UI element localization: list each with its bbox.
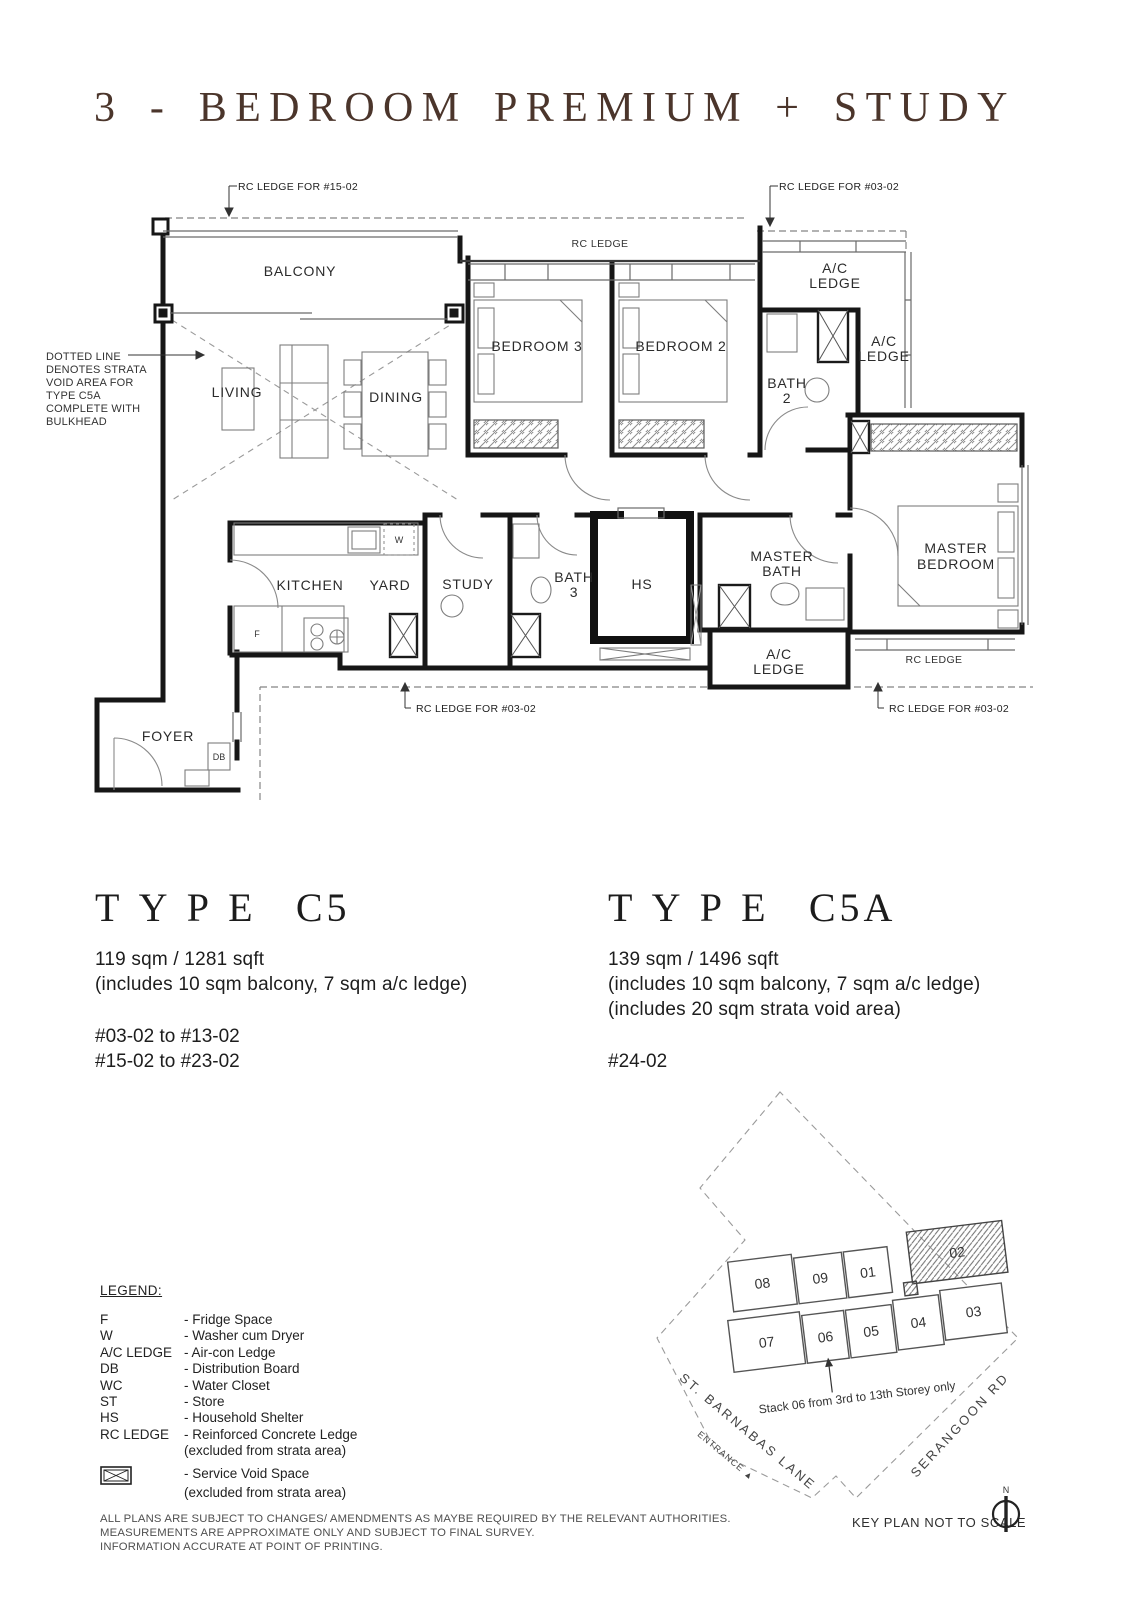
type-c5a-note1: (includes 10 sqm balcony, 7 sqm a/c ledg… [608,972,980,997]
disclaimer-line3: INFORMATION ACCURATE AT POINT OF PRINTIN… [100,1541,731,1555]
stack-06-note: Stack 06 from 3rd to 13th Storey only [758,1378,956,1416]
room-label-hs: HS [631,576,652,592]
room-label-ac-ledge-bottom-line1: A/C [766,646,792,662]
stack-03: 03 [965,1303,983,1321]
room-label-ac-ledge-top-line1: A/C [822,260,848,276]
room-label-bedroom3: BEDROOM 3 [491,338,582,354]
type-c5a-units-1: #24-02 [608,1049,980,1074]
strata-note-line4: TYPE C5A [46,390,101,402]
legend-row-hs: HS- Household Shelter [100,1410,357,1426]
floorplan-page: { "title": "3 - BEDROOM PREMIUM + STUDY"… [0,0,1138,1608]
type-c5-units-2: #15-02 to #23-02 [95,1049,467,1074]
legend-service-void-note: (excluded from strata area) [184,1485,346,1501]
stack-08: 08 [754,1274,772,1292]
strata-void-cross [172,320,458,500]
legend-row-wc: WC- Water Closet [100,1378,357,1394]
callout-rc-ledge-03-02-top: RC LEDGE FOR #03-02 [779,181,899,193]
callout-rc-ledge-15-02: RC LEDGE FOR #15-02 [238,181,358,193]
room-label-balcony: BALCONY [264,263,337,279]
walls [97,224,1022,790]
room-label-foyer: FOYER [142,728,194,744]
stack-05: 05 [862,1322,880,1340]
room-label-master-bedroom-line1: MASTER [924,540,987,556]
room-label-bath2-line2: 2 [783,390,792,406]
strata-note-line1: DOTTED LINE [46,351,121,363]
strata-note-line2: DENOTES STRATA [46,364,147,376]
stack-09: 09 [812,1269,830,1287]
type-c5-heading: TYPEC5 [95,884,467,931]
rc-ledge-master-label: RC LEDGE [906,654,963,666]
service-void-crosses [390,310,869,657]
service-void-icon [100,1466,132,1485]
door-arcs [114,407,898,790]
type-c5a-area: 139 sqm / 1496 sqft [608,947,980,972]
room-label-master-bedroom-line2: BEDROOM [917,556,995,572]
stack-02: 02 [948,1243,966,1261]
type-c5a-label: TYPE [608,885,785,930]
room-label-ac-ledge-right-line2: LEDGE [858,348,909,364]
keyplan-caption: KEY PLAN NOT TO SCALE [852,1515,1026,1530]
legend-row-st: ST- Store [100,1394,357,1410]
legend-row-db: DB- Distribution Board [100,1361,357,1377]
type-c5a-code: C5A [809,885,897,930]
window-lines [163,231,1028,742]
key-plan: 08 09 01 02 07 06 05 04 03 Stack 06 from… [657,1092,1026,1532]
room-label-bath3-line1: BATH [554,569,594,585]
rc-ledge-top-label: RC LEDGE [572,238,629,250]
type-c5-area: 119 sqm / 1281 sqft [95,947,467,972]
legend-row-service-void: - Service Void Space [100,1466,357,1485]
stack-04: 04 [910,1313,928,1331]
legend-row-rc-ledge: RC LEDGE- Reinforced Concrete Ledge [100,1427,357,1443]
legend-rc-ledge-note: (excluded from strata area) [184,1443,346,1459]
room-label-living: LIVING [212,384,263,400]
marker-db: DB [213,752,226,762]
disclaimer-line2: MEASUREMENTS ARE APPROXIMATE ONLY AND SU… [100,1527,731,1541]
disclaimer: ALL PLANS ARE SUBJECT TO CHANGES/ AMENDM… [100,1513,731,1554]
stack-01: 01 [859,1263,877,1281]
room-label-dining: DINING [369,389,423,405]
stack-07: 07 [758,1333,776,1351]
room-label-yard: YARD [369,577,410,593]
building-stacks: 08 09 01 02 07 06 05 04 03 Stack 06 from… [720,1220,1022,1418]
room-label-ac-ledge-right-line1: A/C [871,333,897,349]
type-c5-code: C5 [296,885,351,930]
room-label-bath3-line2: 3 [570,584,579,600]
strata-note-line6: BULKHEAD [46,416,107,428]
room-label-study: STUDY [442,576,493,592]
type-c5a-heading: TYPEC5A [608,884,980,931]
callout-rc-ledge-03-02-bottom-left: RC LEDGE FOR #03-02 [416,703,536,715]
legend-row-ac-ledge: A/C LEDGE- Air-con Ledge [100,1345,357,1361]
plan-labels: RC LEDGE FOR #15-02 RC LEDGE FOR #03-02 … [46,181,1009,762]
type-c5a-section: TYPEC5A 139 sqm / 1496 sqft (includes 10… [608,884,980,1074]
legend: LEGEND: F- Fridge Space W- Washer cum Dr… [100,1283,357,1501]
disclaimer-line1: ALL PLANS ARE SUBJECT TO CHANGES/ AMENDM… [100,1513,731,1527]
type-c5-label: TYPE [95,885,272,930]
room-label-ac-ledge-bottom-line2: LEDGE [753,661,804,677]
type-c5-units-1: #03-02 to #13-02 [95,1024,467,1049]
room-label-master-bath-line2: BATH [762,563,802,579]
callout-rc-ledge-03-02-bottom-right: RC LEDGE FOR #03-02 [889,703,1009,715]
room-label-bedroom2: BEDROOM 2 [635,338,726,354]
room-label-master-bath-line1: MASTER [750,548,813,564]
type-c5-note: (includes 10 sqm balcony, 7 sqm a/c ledg… [95,972,467,997]
room-label-ac-ledge-top-line2: LEDGE [809,275,860,291]
marker-fridge: F [254,629,260,639]
north-label: N [1003,1485,1010,1495]
legend-heading: LEGEND: [100,1283,162,1298]
wardrobes [474,420,1017,451]
service-void-boxes [390,310,869,657]
stack-06: 06 [817,1328,835,1346]
type-c5a-note2: (includes 20 sqm strata void area) [608,997,980,1022]
legend-row-washer: W- Washer cum Dryer [100,1328,357,1344]
room-label-bath2-line1: BATH [767,375,807,391]
legend-row-fridge: F- Fridge Space [100,1312,357,1328]
type-c5-section: TYPEC5 119 sqm / 1281 sqft (includes 10 … [95,884,467,1074]
room-label-kitchen: KITCHEN [276,577,343,593]
marker-washer: W [395,535,404,545]
strata-note-line3: VOID AREA FOR [46,377,134,389]
strata-note-line5: COMPLETE WITH [46,403,140,415]
